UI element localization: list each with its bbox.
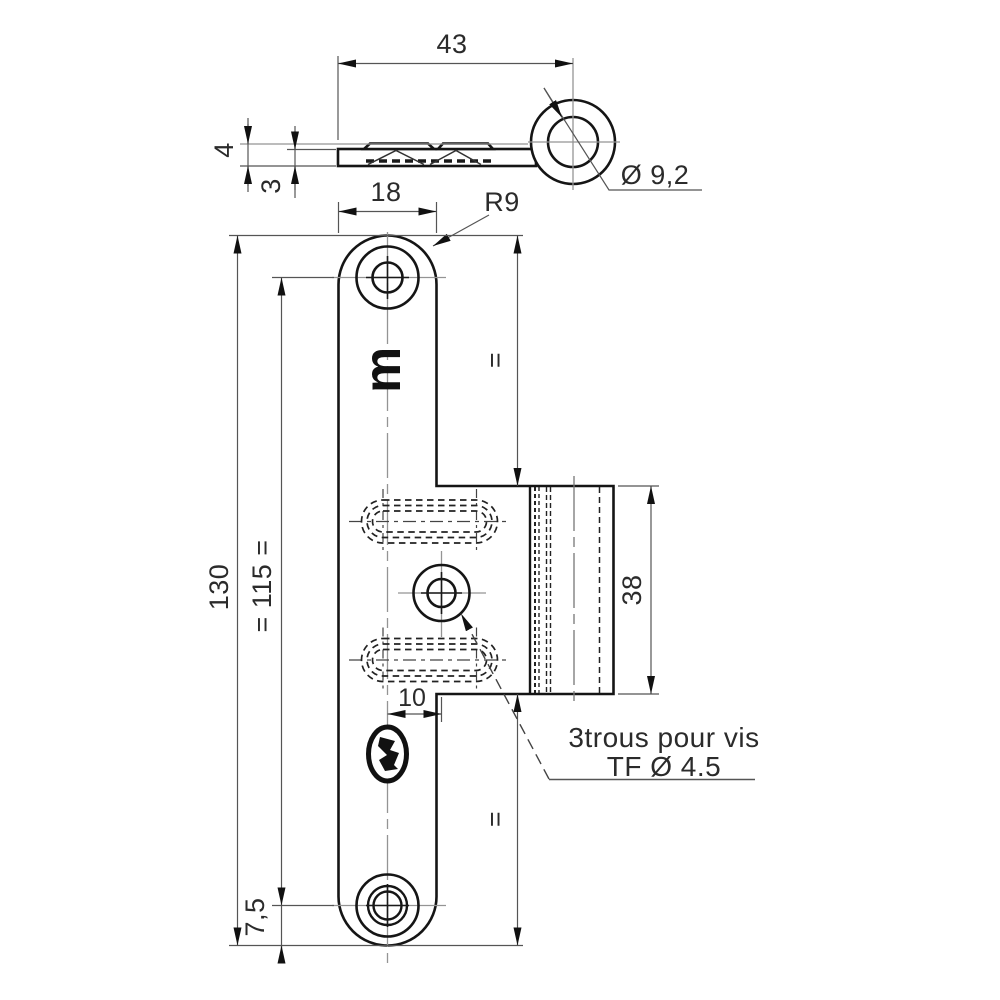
note-line-1: 3trous pour vis	[568, 722, 759, 753]
brand-stamp-m: m	[354, 347, 412, 393]
technical-drawing-canvas: 43 4 3 Ø 9,2	[0, 0, 1000, 1000]
dim-text-3: 3	[256, 178, 286, 194]
dim-text-4: 4	[209, 142, 239, 158]
dim-text-10: 10	[398, 684, 426, 712]
dim-text-43: 43	[436, 29, 467, 59]
dim-text-38: 38	[617, 574, 647, 605]
side-view: 43 4 3 Ø 9,2	[209, 29, 702, 198]
side-bar	[338, 149, 536, 166]
strike-plate-drawing: 43 4 3 Ø 9,2	[0, 0, 1000, 1000]
dim-text-diameter: Ø 9,2	[621, 160, 690, 190]
dim-text-r9: R9	[484, 187, 520, 217]
dim-text-130: 130	[204, 564, 234, 611]
plate-outline	[339, 236, 614, 946]
brand-stamp-oval	[369, 727, 407, 781]
dim-text-75: 7,5	[240, 897, 270, 936]
leader-r9	[433, 215, 489, 246]
dim-text-equal-top: =	[480, 352, 510, 368]
dim-text-115: = 115 =	[247, 539, 277, 632]
front-view: m	[332, 232, 614, 966]
dim-text-equal-bottom: =	[480, 811, 510, 827]
note-line-2: TF Ø 4.5	[607, 751, 721, 782]
dim-text-18: 18	[370, 177, 401, 207]
